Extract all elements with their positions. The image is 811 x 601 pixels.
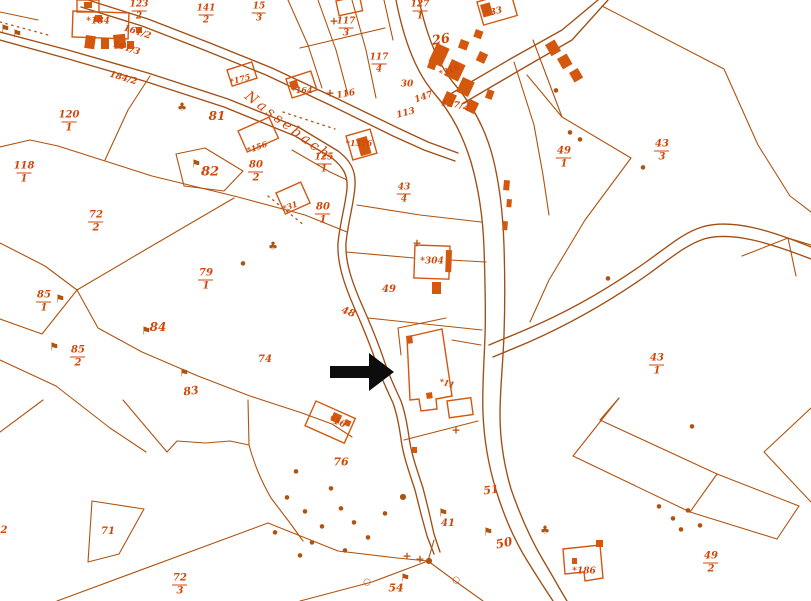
tree-icon: ♣ [268, 241, 278, 252]
circle-icon: ○ [452, 577, 460, 586]
dot-icon: ● [284, 495, 289, 501]
parcel-label-85-1: 851 [35, 291, 53, 314]
flag-icon: ⚑ [49, 342, 59, 353]
parcel-label-43-3: 433 [653, 140, 671, 163]
dot-icon: ● [309, 540, 314, 546]
parcel-label-26: 26 [431, 32, 451, 48]
dot-icon: ● [382, 511, 387, 517]
parcel-label-120-1: 1201 [57, 111, 82, 134]
parcel-label-83: 83 [183, 384, 200, 397]
dot-icon: ● [297, 553, 302, 559]
dot-icon: ● [567, 130, 572, 136]
parcel-label-123-2: 1232 [128, 1, 151, 22]
dot-icon: ● [302, 509, 307, 515]
parcel-label-43-1: 431 [648, 354, 666, 377]
flag-icon: ⚑ [179, 368, 189, 379]
parcel-label-117-4: 1174 [368, 54, 391, 75]
cadastral-map-canvas[interactable]: 1232141215312711173117412011181125143480… [0, 0, 811, 601]
dot-icon: ● [689, 424, 694, 430]
parcel-label-72-2: 722 [87, 211, 105, 234]
flag-icon: ⚑ [55, 294, 65, 305]
parcel-label-141-2: 1412 [195, 5, 218, 26]
parcel-label-74: 74 [258, 355, 272, 365]
cross-icon: + [402, 551, 411, 562]
dot-icon: ● [605, 276, 610, 282]
parcel-label-49-2: 492 [702, 552, 720, 575]
dot-icon: ● [553, 88, 558, 94]
dot-icon: ● [328, 486, 333, 492]
parcel-label-127-1: 1271 [409, 1, 432, 22]
parcel-label-184: *184 [86, 18, 110, 27]
cross-icon: + [325, 88, 334, 99]
cross-icon: + [415, 554, 424, 565]
cross-icon: + [412, 238, 421, 249]
dot-icon: ● [685, 508, 690, 514]
parcel-label-164: *164 [292, 86, 313, 94]
dot-icon: ● [656, 504, 661, 510]
stone-icon: ● [426, 557, 433, 565]
tree-icon: ♣ [177, 102, 187, 113]
parcel-label-118-1: 1181 [12, 162, 37, 185]
dot-icon: ● [240, 261, 245, 267]
buildings-layer [72, 0, 603, 581]
circle-icon: ○ [363, 579, 371, 588]
flag-icon: ⚑ [483, 527, 493, 538]
parcel-label-84: 84 [150, 321, 167, 333]
flag-icon: ⚑ [191, 159, 201, 170]
dot-icon: ● [293, 469, 298, 475]
parcel-label-304: *304 [420, 258, 444, 267]
parcel-label-49-1: 491 [555, 147, 573, 170]
parcel-label-80-1: 801 [314, 203, 332, 226]
dot-icon: ● [640, 165, 645, 171]
dot-icon: ● [365, 535, 370, 541]
dot-icon: ● [319, 524, 324, 530]
parcel-label-71: 71 [101, 527, 115, 537]
dot-icon: ● [670, 516, 675, 522]
dot-icon: ● [351, 520, 356, 526]
flag-icon: ⚑ [12, 29, 22, 40]
parcel-label-81: 81 [209, 110, 226, 122]
parcel-label-76: 76 [333, 457, 348, 468]
parcel-label-43-4: 434 [396, 184, 413, 205]
dot-icon: ● [338, 506, 343, 512]
parcel-label-49: 49 [382, 285, 396, 295]
parcel-label-41: 41 [441, 519, 455, 529]
parcel-label-1376: *1376 [346, 139, 372, 147]
parcel-label-186: *186 [572, 568, 596, 577]
dot-icon: ● [577, 137, 582, 143]
tree-icon: ♣ [540, 525, 550, 536]
cross-icon: + [451, 425, 460, 436]
flag-icon: ⚑ [400, 573, 410, 584]
parcel-label-15-3: 153 [251, 3, 268, 24]
parcel-label-51: 51 [483, 483, 500, 496]
flag-icon: ⚑ [438, 508, 448, 519]
flag-icon: ⚑ [0, 24, 10, 35]
parcel-label-82: 82 [201, 166, 219, 179]
parcel-label-72-3: 723 [171, 574, 189, 597]
parcel-label-80-2: 802 [247, 161, 265, 184]
parcel-label-30: 30 [401, 81, 414, 90]
dot-icon: ● [678, 527, 683, 533]
parcel-label-2: 2 [1, 526, 8, 536]
dot-icon: ● [342, 548, 347, 554]
dot-icon: ● [697, 523, 702, 529]
cross-icon: + [329, 16, 338, 27]
parcel-label-79-1: 791 [197, 269, 215, 292]
dot-icon: ● [272, 530, 277, 536]
stone-icon: ● [400, 493, 407, 501]
parcel-label-85-2: 852 [69, 346, 87, 369]
parcel-label-50: 50 [495, 535, 514, 550]
flag-icon: ⚑ [141, 326, 151, 337]
